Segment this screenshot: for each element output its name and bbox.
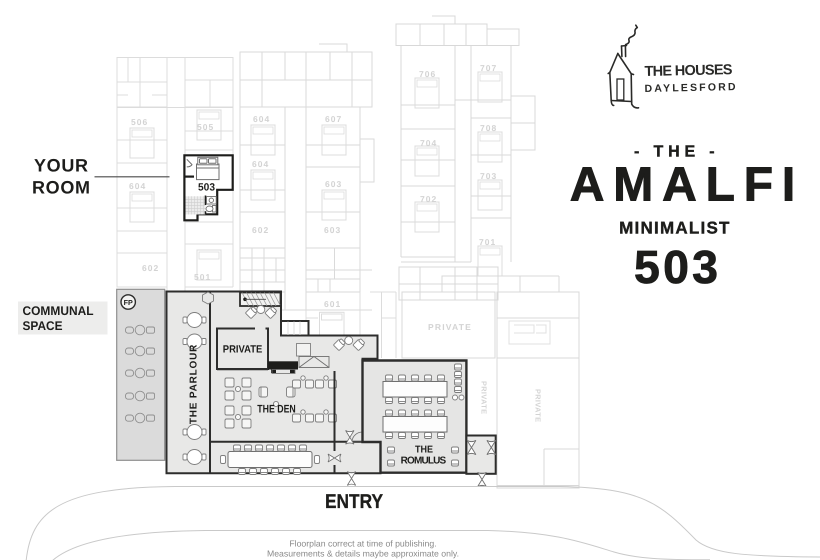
svg-text:DAYLESFORD: DAYLESFORD	[644, 81, 736, 95]
svg-text:ENTRY: ENTRY	[325, 491, 384, 513]
svg-text:ROOM: ROOM	[32, 178, 90, 198]
svg-text:Measurements & details maybe a: Measurements & details maybe approximate…	[267, 549, 459, 559]
svg-text:PRIVATE: PRIVATE	[428, 322, 472, 332]
svg-text:603: 603	[325, 179, 342, 189]
svg-text:PRIVATE: PRIVATE	[480, 381, 489, 414]
svg-text:COMMUNAL: COMMUNAL	[23, 304, 94, 318]
svg-text:503: 503	[198, 182, 215, 194]
svg-text:MINIMALIST: MINIMALIST	[619, 219, 730, 238]
svg-text:602: 602	[252, 225, 269, 235]
svg-text:FP: FP	[124, 298, 133, 307]
svg-text:YOUR: YOUR	[34, 156, 88, 176]
svg-text:703: 703	[480, 171, 497, 181]
svg-text:506: 506	[131, 117, 148, 127]
svg-text:607: 607	[325, 114, 342, 124]
svg-text:604: 604	[129, 181, 146, 191]
svg-text:THE: THE	[415, 445, 433, 456]
svg-text:706: 706	[419, 69, 436, 79]
svg-text:604: 604	[253, 114, 270, 124]
svg-text:501: 501	[194, 272, 211, 282]
svg-text:THE DEN: THE DEN	[257, 403, 296, 415]
svg-text:601: 601	[324, 299, 341, 309]
svg-text:603: 603	[324, 225, 341, 235]
svg-text:505: 505	[197, 122, 214, 132]
svg-text:701: 701	[479, 237, 496, 247]
svg-text:602: 602	[142, 263, 159, 273]
svg-text:PRIVATE: PRIVATE	[534, 389, 543, 422]
svg-text:702: 702	[420, 194, 437, 204]
svg-text:THE HOUSES: THE HOUSES	[644, 62, 733, 80]
svg-text:PRIVATE: PRIVATE	[223, 343, 262, 355]
svg-text:704: 704	[420, 138, 437, 148]
svg-text:604: 604	[252, 159, 269, 169]
svg-text:Floorplan correct at time of p: Floorplan correct at time of publishing.	[289, 539, 436, 549]
svg-text:708: 708	[480, 123, 497, 133]
svg-text:707: 707	[480, 63, 497, 73]
svg-text:AMALFI: AMALFI	[570, 159, 796, 212]
svg-text:ROMULUS: ROMULUS	[401, 456, 447, 467]
svg-text:SPACE: SPACE	[23, 319, 63, 333]
svg-text:THE PARLOUR: THE PARLOUR	[189, 344, 200, 424]
svg-text:503: 503	[634, 241, 718, 293]
